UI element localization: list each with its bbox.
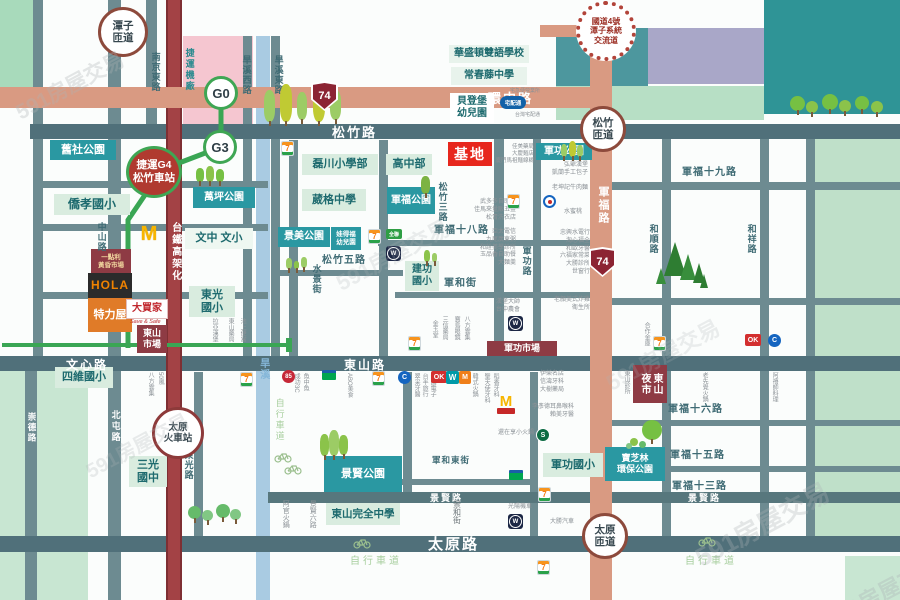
tree-column-icon <box>569 141 576 157</box>
shops-column-west: 亞太電信 九尾廣東粥 和詮美學診所 玉品香自助餐 大麵羹 <box>470 229 516 268</box>
shop-vertical: 八方雲集 <box>462 316 469 340</box>
dongshan-market-label: 東山 市場 <box>137 325 167 353</box>
dongshan-night-market-label: 夜市 東山 <box>633 365 667 403</box>
yidianli-market-label: 一點利 黃昏市場 <box>91 249 131 275</box>
kymco-label: 光陽機車 <box>496 504 532 512</box>
tree-round-icon <box>839 100 851 112</box>
railway-elevated-label: 台鐵高架化 <box>169 222 181 282</box>
shops-column-east: 忠興水電行 淘心福全 和歐牙醫 六福家常菜 大勝診所 世窗行 <box>546 230 590 277</box>
tree-column-icon <box>286 258 292 269</box>
tree-conifer-icon <box>656 268 666 284</box>
shops-ent-clinic: 李彥德耳鼻喉科 賴美牙醫 <box>530 404 574 420</box>
seven-eleven-icon: 7 <box>537 560 550 575</box>
junhe-st-label: 軍和街 <box>444 278 477 290</box>
tree-column-icon <box>216 169 224 182</box>
mcdonalds-icon: M <box>141 226 157 242</box>
jungong-market-label: 軍功市場 <box>487 341 557 356</box>
tree-column-icon <box>329 430 339 456</box>
tree-column-icon <box>196 168 204 182</box>
location-map: 舊社公園萬坪公園軍功公園軍福公園景美公園景賢公園寶芝林 環保公園娃得福 幼兒園僑… <box>0 0 900 600</box>
wanping-park-label: 萬坪公園 <box>193 187 255 208</box>
junfu-15th-label: 軍福十五路 <box>670 450 725 462</box>
jingmei-park-label: 景美公園 <box>278 227 330 247</box>
hanxi-w-road-label: 旱溪西路 <box>241 55 252 95</box>
ok-mart-icon: OK <box>745 334 761 346</box>
tree-round-icon <box>188 506 201 519</box>
blue-ring-icon <box>543 195 556 208</box>
damaijia-store-label: 大買家 <box>126 299 168 319</box>
tree-column-icon <box>294 261 299 269</box>
watsons-icon: W <box>446 371 459 384</box>
starbucks-icon: S <box>536 428 550 442</box>
mentor-hair-icon: M <box>459 371 471 384</box>
tree-round-icon <box>642 420 662 440</box>
shop-vertical: 東山診所 <box>622 370 629 394</box>
wagor-school-label: 葳格中學 <box>302 189 366 211</box>
wenxin-road-label: 文心路 <box>66 358 108 372</box>
shuijing-st-label: 水景街 <box>311 264 322 294</box>
shop-vertical: 寶島眼鏡 <box>452 316 459 340</box>
shop-vertical: 東山藥局 <box>226 318 233 342</box>
tree-bush-icon <box>639 441 646 448</box>
tree-round-icon <box>216 504 230 518</box>
shop-vertical: 拉亞漢堡 <box>210 318 217 342</box>
shop-vertical: 韓式火鍋 <box>470 373 477 397</box>
tree-column-icon <box>280 84 292 122</box>
volkswagen-icon: W <box>508 316 523 331</box>
bicycle-icon <box>353 536 371 554</box>
songzhu-ramp-badge: 松竹 匝道 <box>580 106 626 152</box>
mrt-depot-label: 捷運機廠 <box>184 48 195 92</box>
hexiang-road-label: 和祥路 <box>746 224 757 254</box>
tree-column-icon <box>264 90 275 122</box>
shop-vertical: ABO美食 <box>345 373 352 398</box>
pelican-office-label: 宅急便營業所 <box>494 88 540 95</box>
shops-jungong-park: 弘爺漢堡 凱蘭手工包子 <box>542 162 588 178</box>
seven-eleven-icon: 7 <box>281 141 294 156</box>
damaijia-slogan: Save & Safe <box>130 319 161 325</box>
shop-vertical: 三信藥局 <box>440 316 447 340</box>
shops-night-market-west: 伊榮名店 信濤牙科 大樹藥局 <box>530 371 564 394</box>
freeway4-interchange-badge: 國道4號 潭子系統 交流道 <box>576 1 636 61</box>
px-mart-icon: 全聯 <box>386 229 402 239</box>
shop-vertical: 魚中魚 <box>301 373 308 391</box>
sanguang-school-label: 三光 國中 <box>129 456 167 487</box>
volkswagen-icon: W <box>386 246 401 261</box>
junfu-16th-label: 軍福十六路 <box>668 404 723 416</box>
tree-column-icon <box>421 176 430 194</box>
coop-bank-label: 合作金庫 <box>642 322 649 346</box>
baozhilin-park-label: 寶芝林 環保公園 <box>605 447 665 481</box>
shop-vertical: 金玉堂 <box>430 320 437 338</box>
shops-peach: 水蜜桃 <box>552 209 582 217</box>
jingxian-6th-label: 景賢六路 <box>308 500 316 528</box>
mrt-station-g0: G0 <box>204 76 238 110</box>
dongguang-school-label: 東光 國小 <box>189 286 235 317</box>
junhe-e-st-label: 軍和東街 <box>432 455 470 465</box>
hanxi-river-label: 旱溪 <box>257 358 269 380</box>
bike-path-label: 自行車道 <box>685 556 737 568</box>
bicycle-icon <box>284 462 302 480</box>
songzhu-3rd-label: 松竹三路 <box>437 182 448 222</box>
shop-vertical: 台半旅行 <box>420 373 427 397</box>
seven-eleven-icon: 7 <box>538 487 551 502</box>
jingxian-road-label: 景賢路 <box>688 493 721 504</box>
tree-column-icon <box>577 145 583 157</box>
family-mart-icon <box>322 370 336 380</box>
shops-near-site: 佳美藥局 大慶麵店 廈門馬祖麵線糊 <box>492 144 534 165</box>
jungong-school-label: 軍功國小 <box>543 453 603 477</box>
mrt-station-g3: G3 <box>203 130 237 164</box>
site-label: 基地 <box>448 142 492 166</box>
tree-column-icon <box>424 250 430 262</box>
seven-eleven-icon: 7 <box>653 336 666 351</box>
tree-column-icon <box>339 435 348 455</box>
beitun-road-label: 北屯路 <box>110 410 121 443</box>
tree-bush-icon <box>626 443 632 449</box>
shop-vertical: 八方雲集 <box>146 372 153 396</box>
leichuan-elementary-label: 磊川小學部 <box>302 154 378 175</box>
dasheng-motors-label: 大勝汽車 <box>538 519 574 527</box>
seven-eleven-icon: 7 <box>368 229 381 244</box>
heshun-road-label: 和順路 <box>648 224 659 254</box>
taiyuan-train-station-badge: 太原 火車站 <box>152 407 204 459</box>
tree-round-icon <box>871 101 883 113</box>
shop-vertical: 池上便當 <box>238 318 245 342</box>
wadefu-kindergarten-label: 娃得福 幼兒園 <box>331 227 361 250</box>
songzhu-road-label: 松竹路 <box>332 125 377 140</box>
bike-path-label: 自行車道 <box>274 398 285 442</box>
shops-hotpot-note: 還在享小火鍋 <box>492 430 534 438</box>
bicycle-icon <box>698 534 716 552</box>
tree-round-icon <box>822 94 838 110</box>
ok-mart-icon: OK <box>431 371 447 383</box>
tree-conifer-icon <box>700 274 708 288</box>
jinghe-st-label: 景和街 <box>452 500 461 524</box>
chunghwa-telecom-icon: C <box>768 334 781 347</box>
jingxian-park-label: 景賢公園 <box>324 456 402 492</box>
tree-round-icon <box>202 510 213 521</box>
tree-column-icon <box>320 434 329 456</box>
high-school-dept-label: 高中部 <box>386 154 432 175</box>
seven-eleven-icon: 7 <box>372 371 385 386</box>
jiushe-park-label: 舊社公園 <box>50 140 116 160</box>
shop-vertical: 稻香牙科 <box>491 373 498 397</box>
tree-column-icon <box>561 144 567 157</box>
tanzi-ramp-badge: 潭子 匝道 <box>98 7 148 57</box>
tree-column-icon <box>206 166 214 182</box>
shop-vertical: 50嵐 <box>156 372 163 385</box>
tree-column-icon <box>297 92 307 120</box>
tree-round-icon <box>790 96 805 111</box>
ivy-school-label: 常春藤中學 <box>451 67 527 85</box>
washington-school-label: 華盛頓雙語學校 <box>449 45 529 63</box>
junfu-19th-label: 軍福十九路 <box>682 167 737 179</box>
jungong-road-label: 軍功路 <box>521 246 532 276</box>
chongde-road-label: 崇德路 <box>27 412 37 444</box>
junfu-13th-label: 軍福十三路 <box>672 481 727 493</box>
tree-round-icon <box>230 509 241 520</box>
mrt-station-g4: 捷運G4 松竹車站 <box>126 146 182 198</box>
qiaoxiao-school-label: 僑孝國小 <box>54 194 130 215</box>
nanjing-e-road-label: 南京東路 <box>150 52 161 92</box>
junfu-road-label: 軍福路 <box>596 186 609 225</box>
tree-round-icon <box>855 96 869 110</box>
seven-eleven-icon: 7 <box>507 194 520 209</box>
shops-beef-noodle: 老坤記牛肉麵 <box>540 185 588 193</box>
shops-fried-chicken: 老顏美式炸雞 衛生所 <box>548 297 590 313</box>
shop-vertical: 翠采牙醫 <box>412 373 419 397</box>
shop-vertical: 聖天使牙科 <box>482 373 489 403</box>
taiyuan-road-label: 太原路 <box>428 536 479 554</box>
tree-column-icon <box>432 253 437 262</box>
pelican-express-icon: 宅配通 <box>500 96 526 109</box>
mcdonalds-sign-icon: M <box>498 396 514 412</box>
bike-path-label: 自行車道 <box>350 556 402 568</box>
shop-vertical: 阿禧師料理 <box>770 372 777 402</box>
songzhu-5th-label: 松竹五路 <box>322 255 366 267</box>
dongshan-high-label: 東山完全中學 <box>326 503 400 525</box>
shops-burger-master: 漢堡大師 台中農會 <box>484 299 520 315</box>
pelican-caption-label: 台灣宅配通 <box>494 112 540 119</box>
family-mart-icon <box>509 470 523 480</box>
volkswagen-icon: W <box>508 514 523 529</box>
tree-column-icon <box>301 257 307 268</box>
aguan-hotpot-label: 阿官火鍋 <box>281 500 289 528</box>
chunghwa-telecom-icon: C <box>398 371 411 384</box>
shop-vertical: 老先覺火鍋 <box>700 372 707 402</box>
seven-eleven-icon: 7 <box>408 336 421 351</box>
taiyuan-ramp-badge: 太原 匝道 <box>582 513 628 559</box>
hola-store-label: HOLA <box>88 273 132 298</box>
tree-round-icon <box>806 101 818 113</box>
85c-icon: 85 <box>282 370 295 383</box>
zhongshan-road-label: 中山路 <box>96 222 107 252</box>
seven-eleven-icon: 7 <box>240 372 253 387</box>
wenzhong-wenxiao-label: 文中 文小 <box>185 228 253 249</box>
